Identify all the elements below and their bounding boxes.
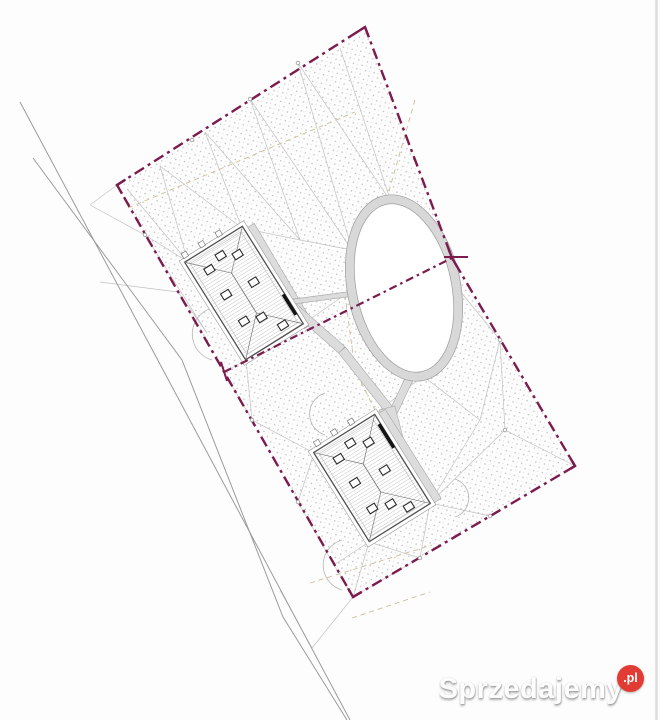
survey-node: [418, 556, 422, 560]
survey-node: [488, 514, 492, 518]
site-plan-drawing: [0, 0, 660, 720]
survey-node: [296, 61, 300, 65]
survey-node: [503, 428, 507, 432]
survey-node: [248, 97, 252, 101]
survey-node: [498, 338, 502, 342]
survey-node: [296, 500, 300, 504]
survey-node: [250, 418, 254, 422]
survey-node: [190, 138, 194, 142]
survey-node: [143, 233, 147, 237]
site-plan-image: Sprzedajemy .pl: [0, 0, 660, 720]
